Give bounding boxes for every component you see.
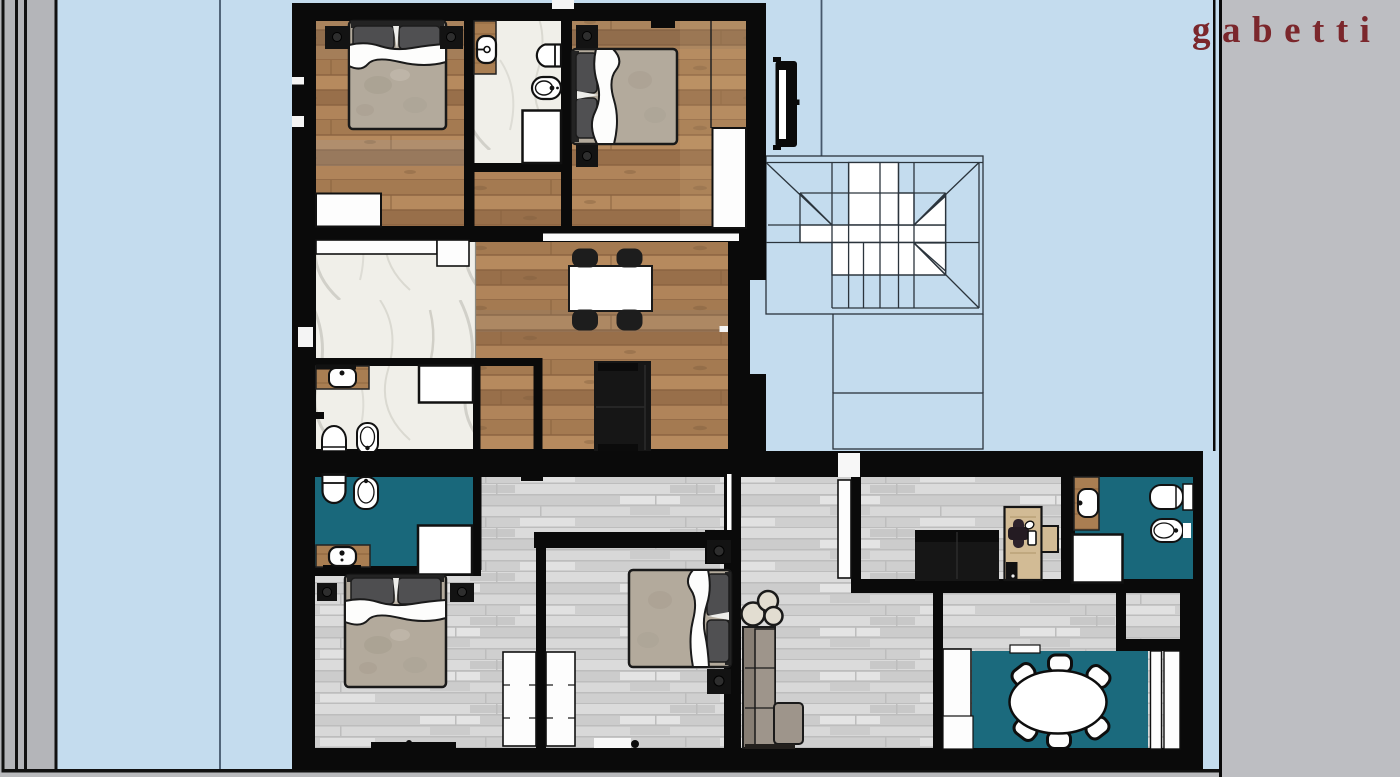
svg-text:gabetti: gabetti [1192,10,1381,51]
